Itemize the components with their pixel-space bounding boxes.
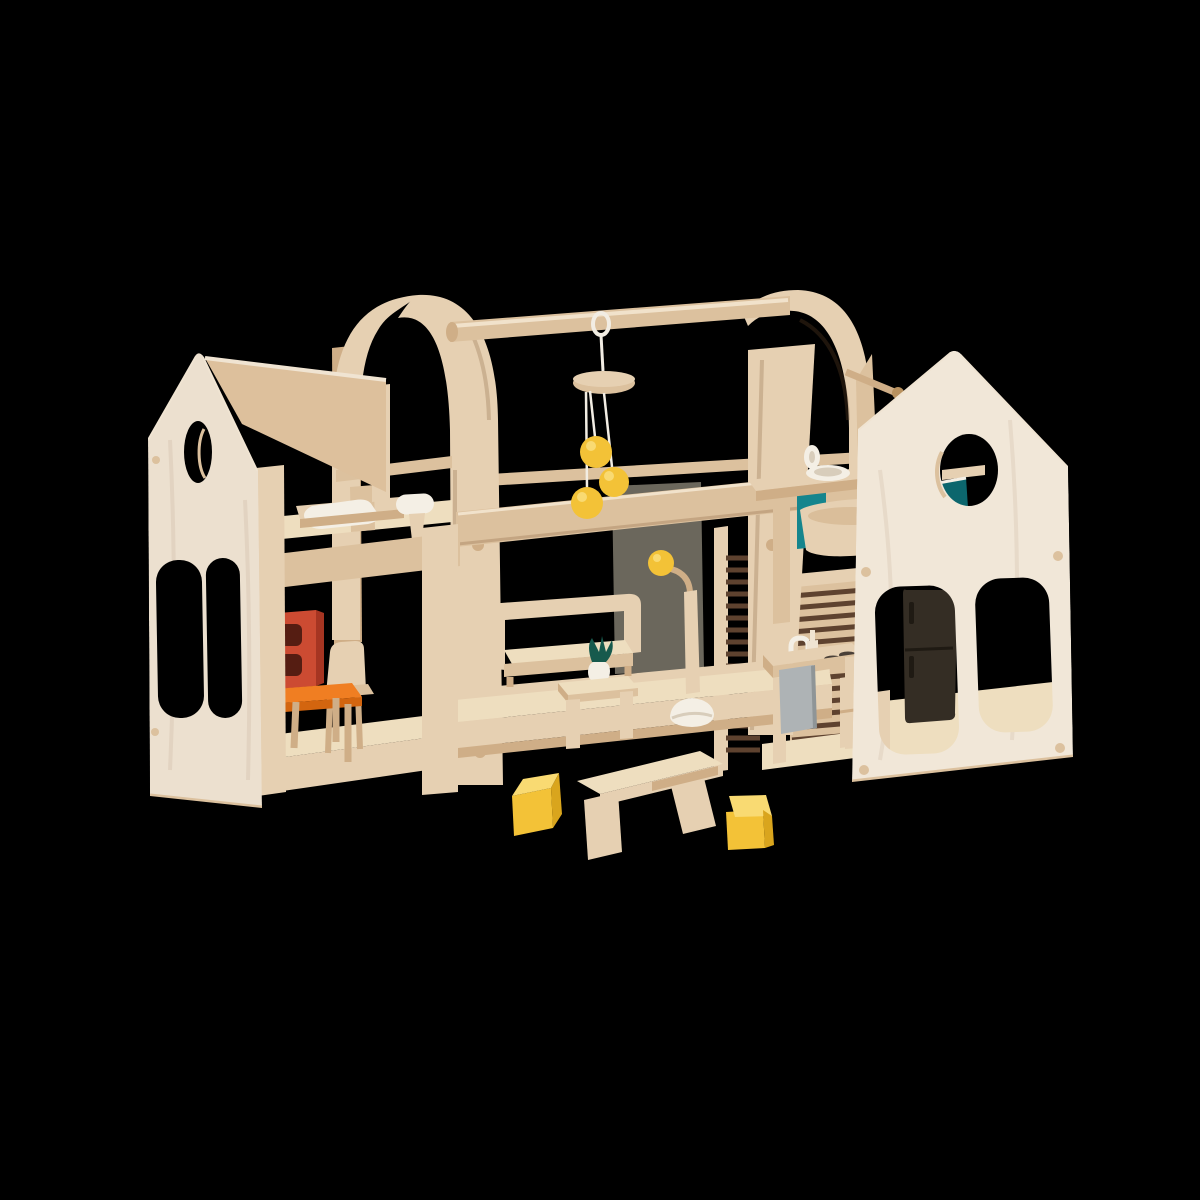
pole-end-cap [446,322,458,342]
coffee-table-leg [620,691,633,739]
slat-wall-post [714,526,728,772]
mobile-ball-highlight [577,492,587,502]
cube-stool-front [512,788,553,836]
front-right-post [422,524,458,795]
product-photo-stage [0,0,1200,1200]
mushroom-lamp-cap [396,493,435,515]
dowel [861,567,871,577]
dowel [1055,743,1065,753]
lamp-head [648,550,674,576]
red-shelf-side [316,610,324,686]
dollhouse-photo [0,0,1200,1200]
mobile-ball [599,467,629,497]
mobile-disc-top [573,371,635,387]
coffee-table-leg [566,699,580,749]
basin-bowl-inner [814,468,842,477]
lamp-head-highlight [653,554,661,562]
dowel [151,728,159,736]
mobile-ball [571,487,603,519]
dowel [859,765,869,775]
cabinet-door [779,665,815,734]
washstand-post [773,490,790,624]
mobile-ball-highlight [586,441,596,451]
mobile-cord [601,335,603,371]
bottle-neck [810,630,815,641]
basin-jar-hole [809,451,815,463]
dowel [1053,551,1063,561]
mobile-ball [580,436,612,468]
dowel [152,456,160,464]
mobile-ball-highlight [604,471,614,481]
